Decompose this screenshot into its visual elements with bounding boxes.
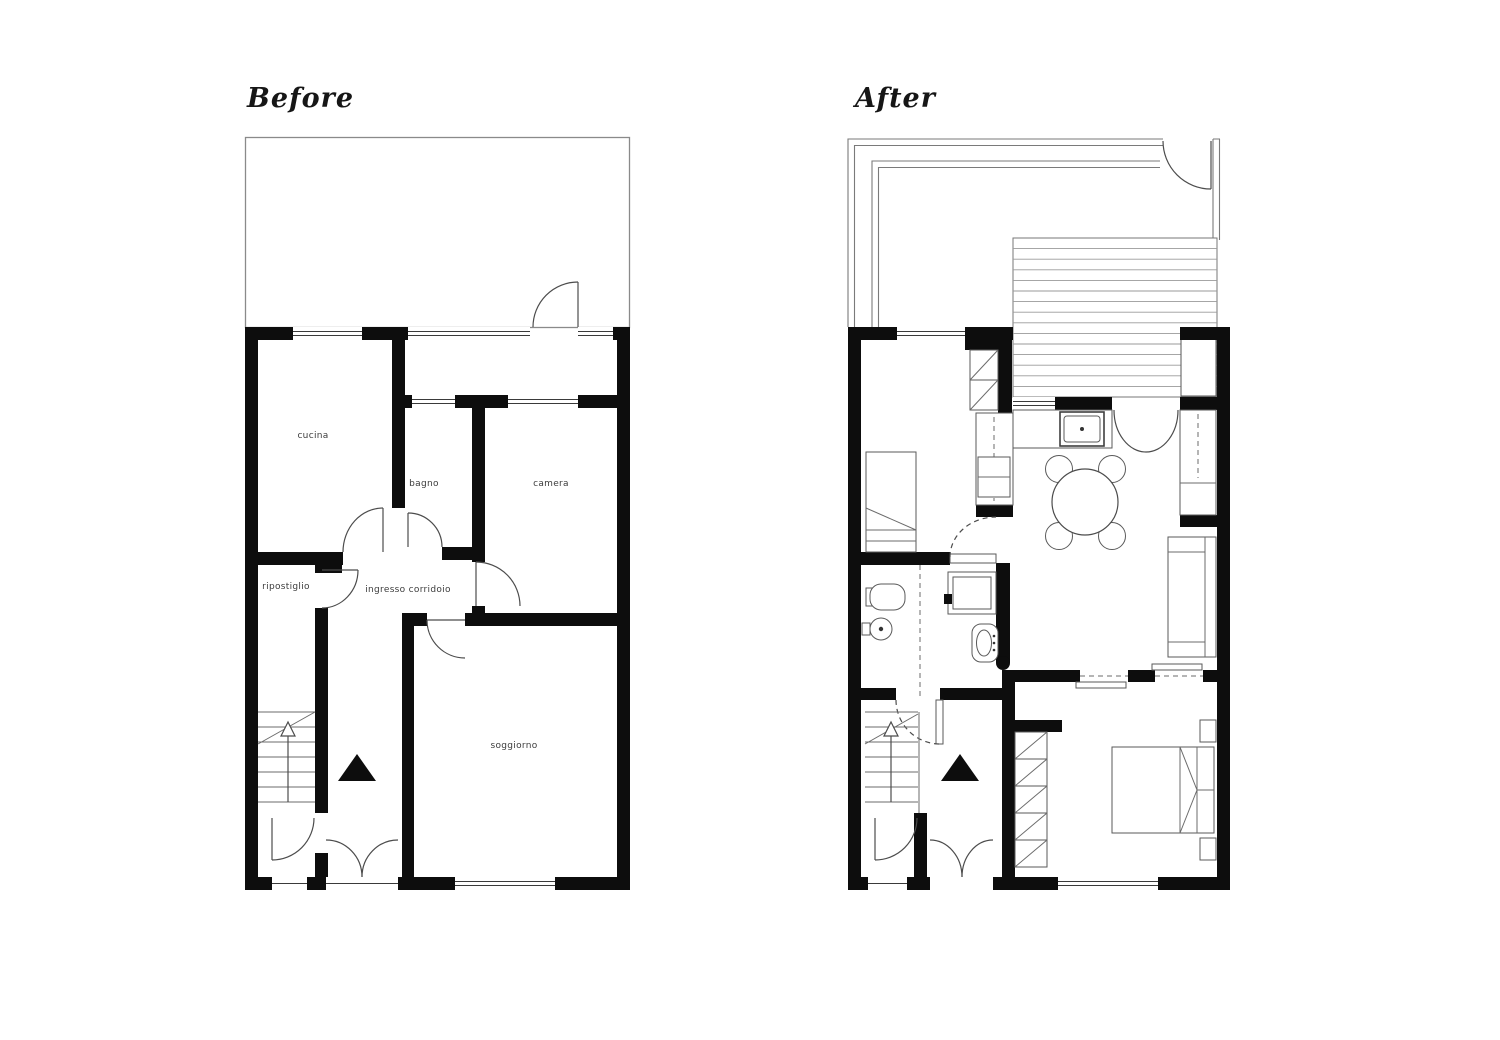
after-plan: After — [848, 83, 1230, 890]
filled-triangle-icon — [338, 754, 376, 781]
bedroom2-wardrobe-icon — [1015, 732, 1047, 867]
ripostiglio-door — [322, 570, 358, 608]
sink-icon — [972, 624, 998, 662]
label-camera: camera — [533, 479, 569, 489]
before-stairs — [258, 712, 315, 802]
label-ingresso: ingresso corridoio — [365, 585, 451, 595]
floorplans-canvas: Before — [0, 0, 1500, 1040]
bagno-door — [408, 513, 442, 547]
side-cabinet — [1180, 410, 1216, 515]
kitchen-furniture — [976, 410, 1216, 550]
bathroom-fixtures — [862, 565, 998, 700]
after-entrance-double-door — [930, 840, 993, 877]
single-bed-icon — [866, 452, 916, 552]
before-terrace — [246, 138, 630, 328]
label-soggiorno: soggiorno — [490, 741, 537, 751]
bedroom2-furniture — [1015, 720, 1216, 867]
bidet-base — [862, 623, 870, 635]
up-arrow-icon — [281, 722, 295, 802]
label-ripostiglio: ripostiglio — [262, 582, 310, 592]
kitchen-french-doors — [1114, 410, 1178, 452]
bedroom1-door — [950, 517, 996, 563]
nightstand-icon — [1200, 838, 1216, 860]
dining-table-icon — [1046, 456, 1126, 550]
kitchen-tall-units — [976, 413, 1013, 505]
terrace-gate-door — [1163, 141, 1211, 189]
sofa-icon — [1168, 537, 1216, 657]
bedroom1-wardrobe-icon — [970, 350, 998, 410]
before-plan: Before — [245, 83, 630, 890]
camera-door — [476, 562, 520, 606]
shower-icon — [944, 572, 996, 614]
after-stairs — [865, 712, 919, 813]
toilet-icon — [870, 584, 905, 610]
bidet-drain — [879, 627, 883, 631]
soggiorno-door — [427, 620, 465, 658]
deck-storage-box — [1181, 337, 1216, 396]
double-bed-icon — [1112, 747, 1214, 833]
before-room-labels: cucina bagno camera ripostiglio ingresso… — [262, 431, 569, 751]
label-cucina: cucina — [297, 431, 328, 441]
after-up-arrow-icon — [884, 722, 898, 802]
before-walls — [245, 327, 630, 890]
after-title: After — [852, 83, 937, 114]
after-decking — [1013, 238, 1217, 397]
after-stair-door — [875, 818, 917, 860]
before-title: Before — [246, 83, 354, 114]
entrance-double-door — [326, 840, 398, 877]
stair-door — [272, 818, 314, 860]
after-filled-triangle-icon — [941, 754, 979, 781]
label-bagno: bagno — [409, 479, 439, 489]
nightstand-icon — [1200, 720, 1216, 742]
kitchen-counter — [1013, 410, 1112, 448]
cucina-door — [343, 508, 383, 552]
